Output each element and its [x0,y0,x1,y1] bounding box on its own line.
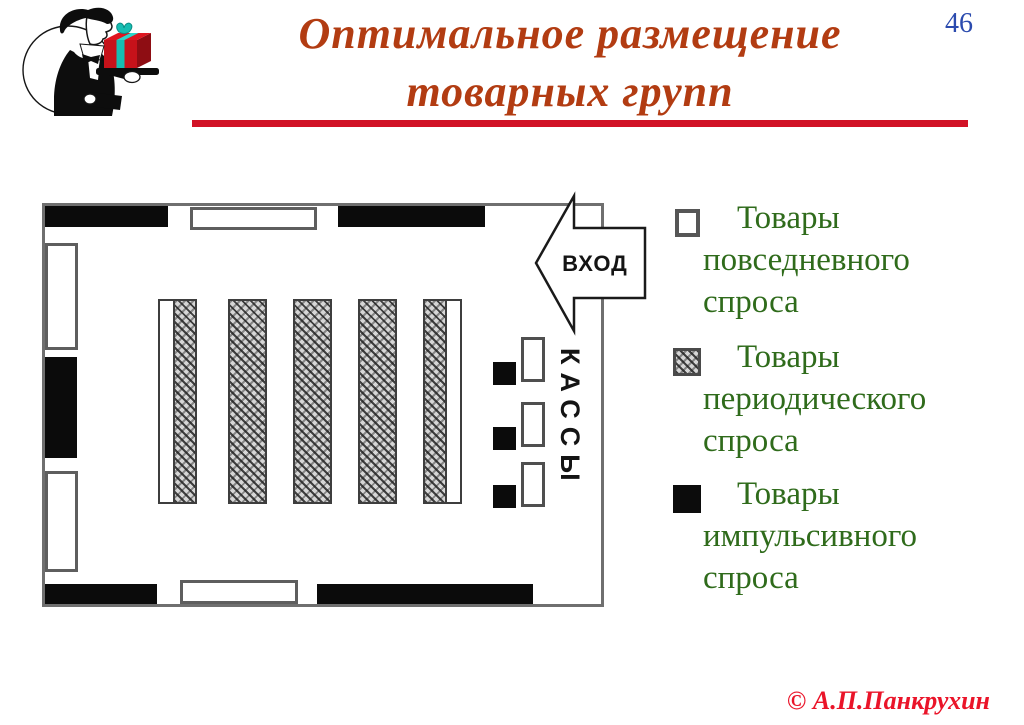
slide-title-line2: товарных групп [150,66,990,117]
impulse-bin [493,485,516,508]
legend-label-everyday: Товары повседневного спроса [703,197,990,323]
bottom-wall-impulse-shelf [317,584,533,604]
legend-label-periodic: Товары периодического спроса [703,336,990,462]
impulse-bin [493,362,516,385]
gondola-shelf-4 [358,299,397,504]
gift-bow [117,23,132,33]
left-wall-everyday-shelf [45,471,78,572]
periodic-goods-swatch [673,348,701,376]
page-number: 46 [945,8,1015,40]
left-wall-impulse-shelf [45,357,77,458]
left-wall-everyday-shelf [45,243,78,350]
bottom-wall-impulse-shelf [45,584,157,604]
checkout-desk [521,337,545,382]
copyright-credit: © А.П.Панкрухин [690,686,990,716]
checkout-label: КАССЫ [554,348,585,523]
gondola-shelf-1 [158,299,197,504]
entrance-label: ВХОД [562,251,628,276]
checkout-desk [521,462,545,507]
gondola-shelf-2 [228,299,267,504]
everyday-goods-swatch [675,209,700,237]
everyday-strip [445,301,460,502]
waiter-gift-clipart-icon [16,4,164,116]
bottom-wall-everyday-shelf [180,580,298,604]
top-wall-impulse-shelf [45,206,168,227]
impulse-bin [493,427,516,450]
gondola-shelf-5 [423,299,462,504]
slide-title-line1: Оптимальное размещение [150,8,990,59]
periodic-hatch [360,301,395,502]
entrance-arrow: ВХОД [524,188,652,340]
periodic-hatch [175,301,195,502]
impulse-goods-swatch [673,485,701,513]
legend-label-impulse: Товары импульсивного спроса [703,473,990,599]
slide-canvas: Оптимальное размещение товарных групп 46… [0,0,1024,725]
waiter-cuff [84,94,96,104]
periodic-hatch [230,301,265,502]
top-wall-everyday-shelf [190,207,317,230]
waiter-hand [124,72,140,83]
gondola-shelf-3 [293,299,332,504]
periodic-hatch [425,301,445,502]
checkout-desk [521,402,545,447]
periodic-hatch [295,301,330,502]
gift-ribbon-front [117,40,125,68]
title-underline [192,120,968,127]
everyday-strip [160,301,175,502]
top-wall-impulse-shelf [338,206,485,227]
